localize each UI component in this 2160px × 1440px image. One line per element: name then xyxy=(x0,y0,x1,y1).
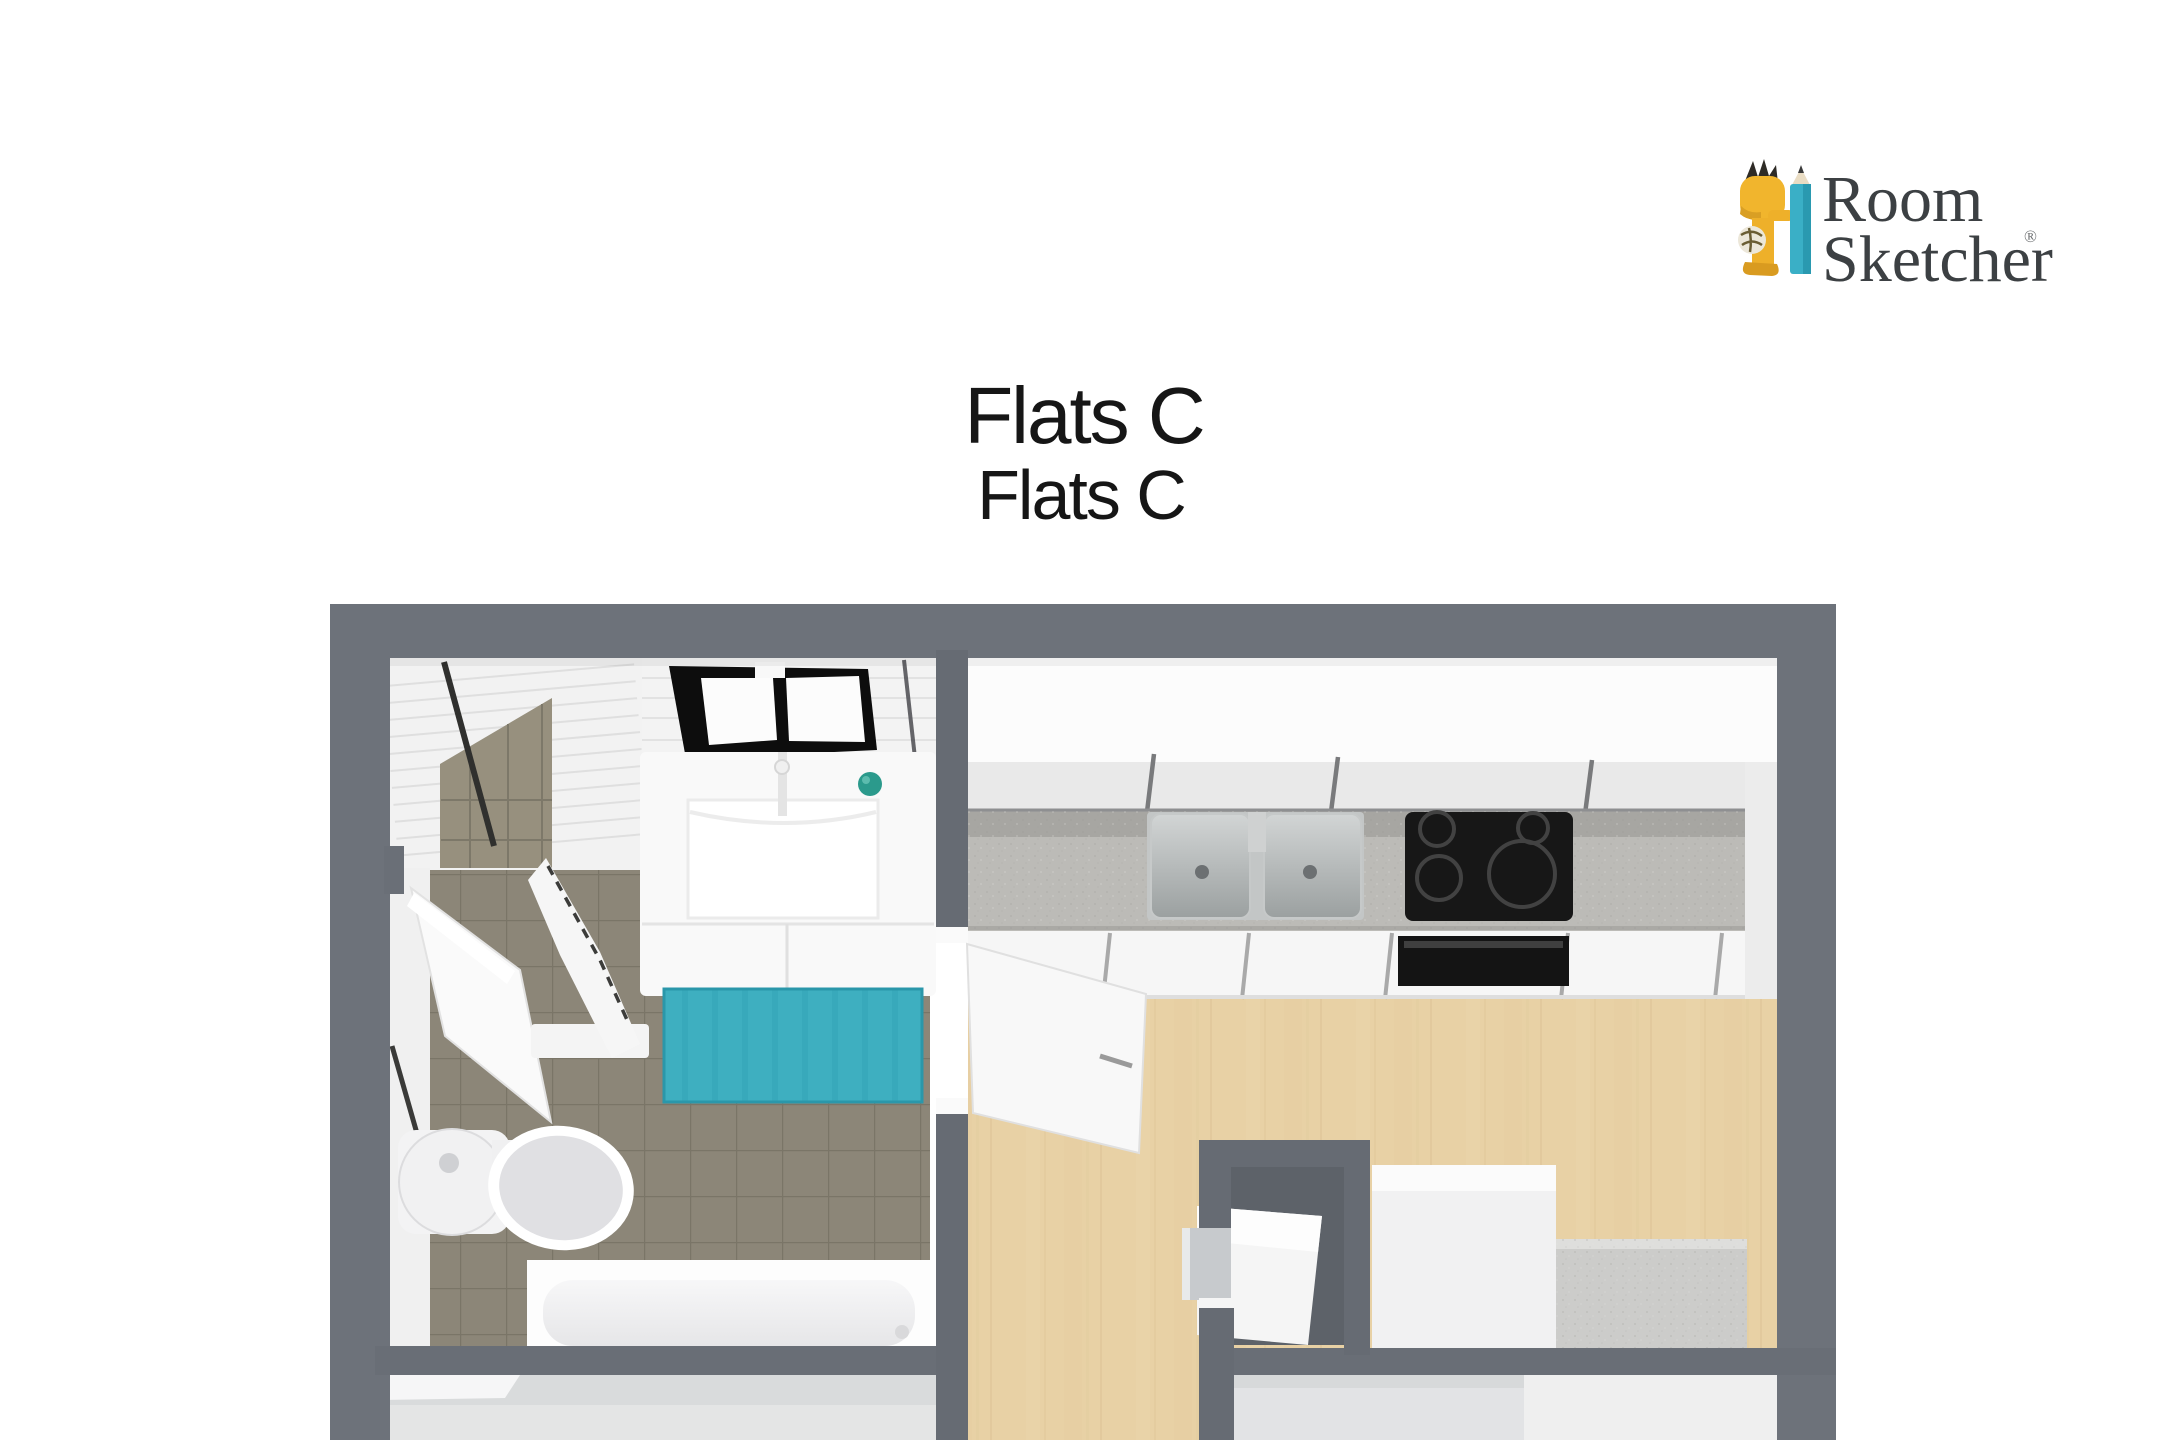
svg-text:Sketcher: Sketcher xyxy=(1822,223,2053,296)
svg-text:Flats C: Flats C xyxy=(977,456,1185,534)
svg-text:Flats C: Flats C xyxy=(964,371,1203,460)
svg-text:®: ® xyxy=(2024,227,2037,246)
